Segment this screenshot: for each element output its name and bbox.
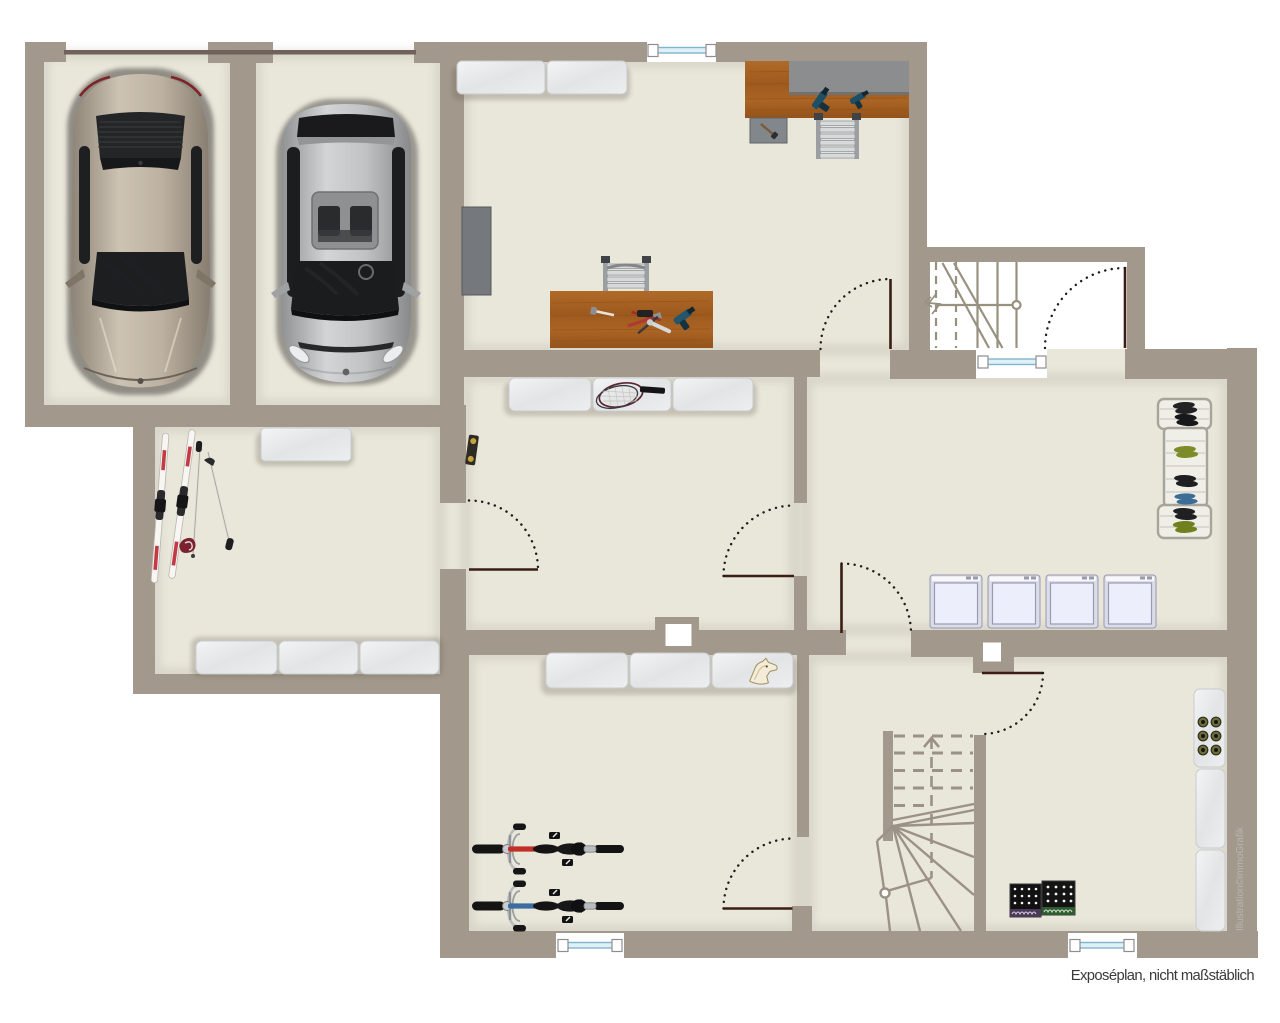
svg-text:Illustration©immoGrafik: Illustration©immoGrafik (1235, 826, 1246, 931)
svg-text:Exposéplan, nicht maßstäblich: Exposéplan, nicht maßstäblich (1071, 968, 1255, 984)
